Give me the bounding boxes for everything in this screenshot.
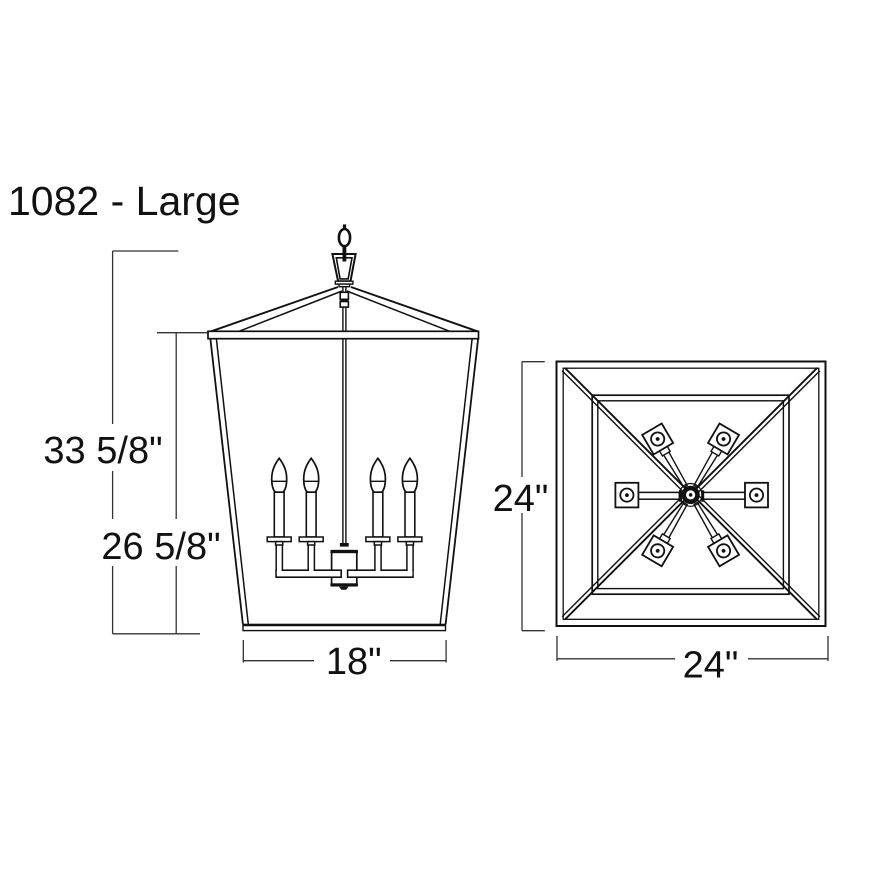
svg-text:18": 18" (326, 641, 382, 683)
svg-text:33 5/8": 33 5/8" (43, 430, 162, 472)
svg-text:26 5/8": 26 5/8" (101, 526, 220, 568)
svg-text:1082 - Large: 1082 - Large (8, 178, 241, 224)
svg-text:24": 24" (493, 478, 549, 520)
svg-text:24": 24" (683, 645, 739, 687)
